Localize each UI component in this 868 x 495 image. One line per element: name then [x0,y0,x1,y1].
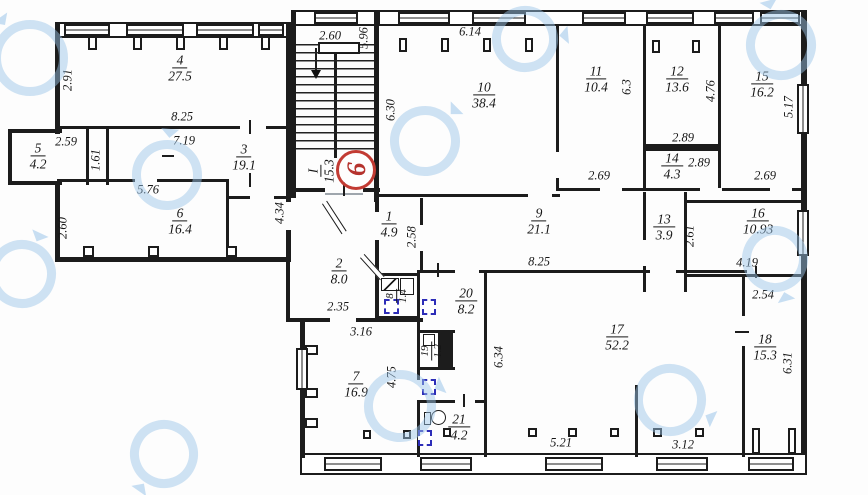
window [196,24,254,36]
window [646,12,694,24]
dim-label: 6.14 [459,25,481,40]
dim-label: 2.58 [405,226,420,248]
room-label-20: 208.2 [455,285,477,316]
dim-label: 4.75 [385,366,400,388]
dim-label: 4.19 [736,256,758,271]
door-opening [600,188,622,191]
dim-label: 2.60 [56,217,71,239]
dim-label: 8.25 [171,110,193,125]
room-label-10: 1038.4 [472,79,496,110]
pier [88,36,97,50]
wall [286,240,290,322]
dim-label: 2.69 [588,169,610,184]
pier [133,36,142,50]
dim-label: 3.12 [672,438,694,453]
window [258,24,284,36]
floor-plan: 9 427.5 54.2 319.1 616.4 I15.3 1038.4 11… [0,0,868,495]
room-label-18: 1815.3 [753,331,777,362]
door-opening [375,212,379,240]
room-label-13: 133.9 [653,211,675,242]
wall [684,200,803,203]
room-label-2: 28.0 [331,255,348,286]
watermark-logo-icon [120,410,207,495]
wall [718,26,721,191]
dim-label: 2.89 [688,156,710,171]
room-label-21: 214.2 [448,411,470,442]
window [797,210,809,256]
pier [226,246,237,257]
dim-label: 2.69 [754,169,776,184]
wall [484,270,487,457]
dim-label: 6.31 [781,352,796,374]
dim-tick [249,120,251,134]
pier [305,418,318,428]
room-label-7: 716.9 [344,368,368,399]
pier [403,430,411,439]
pier [219,36,228,50]
door-opening [455,400,475,403]
red-stamp-circle: 9 [336,150,376,190]
door-opening [420,225,423,251]
dim-label: 2.61 [683,225,698,247]
watermark-logo-icon [118,126,217,225]
wall [106,129,109,185]
vent-shaft-icon [422,379,436,395]
window [324,457,382,471]
dim-label: 5.17 [782,96,797,118]
toilet-tank-icon [424,412,431,425]
door-opening [417,380,420,400]
pier [525,38,533,52]
window [296,348,308,390]
wall [742,276,745,457]
pier [692,40,700,53]
wall [635,385,638,457]
vent-shaft-icon [418,430,432,446]
pier [441,38,449,52]
dim-label: 5.76 [137,183,159,198]
pier [610,428,619,437]
door-opening [250,196,274,199]
dim-label: 3.16 [350,325,372,340]
pier [528,428,537,437]
dim-label: 1.61 [89,149,104,171]
room-label-14: 144.3 [661,150,683,181]
pier [176,36,185,50]
door-opening [240,126,266,129]
window [64,24,110,36]
window [714,12,754,24]
room-label-12: 1213.6 [665,63,689,94]
window [656,457,708,471]
pier [83,246,94,257]
pier [363,430,371,439]
vent-shaft-icon [422,299,436,315]
pier [148,246,159,257]
dim-tick [249,173,251,187]
room-label-1: 14.9 [381,208,398,239]
stairs-arrow-down-icon [311,70,321,84]
room-label-19: 191.2 [419,342,445,361]
dim-tick [463,394,465,407]
dim-tick [735,331,749,333]
dim-label: 4.34 [273,202,288,224]
dim-label: 2.59 [55,135,77,150]
dim-label: 6.30 [384,99,399,121]
dim-label: 2.91 [61,69,76,91]
dim-label: 5.96 [357,27,372,49]
dim-label: 4.76 [704,80,719,102]
wall [417,400,487,403]
room-label-15: 1516.2 [750,68,774,99]
door-leaf [360,254,385,280]
dim-tick [162,155,174,157]
door-opening [770,188,792,191]
window [582,12,626,24]
wall [643,26,646,191]
door-opening [643,240,646,266]
room-label-16: 1610.93 [743,205,773,236]
door-opening [330,318,356,322]
pier [399,38,407,52]
pier [653,428,662,437]
door-opening [650,270,676,273]
window [472,12,526,24]
dim-label: 6.34 [492,346,507,368]
pier [752,428,760,454]
door-leaf [322,201,347,234]
room-label-4: 427.5 [168,52,192,83]
wall [8,129,12,185]
wall [556,188,803,191]
window [126,24,184,36]
window [748,457,794,471]
room-label-stairwell: I15.3 [305,159,336,183]
window [420,457,472,471]
staircase-treads [296,44,374,156]
door-opening [528,194,552,197]
dim-tick [437,263,439,277]
pier [483,38,491,52]
door-opening [556,152,559,178]
wall [8,129,62,133]
toilet-icon [431,410,446,425]
room-label-6: 616.4 [168,205,192,236]
window [398,12,450,24]
window [797,84,809,134]
window [314,12,358,24]
dim-label: 2.54 [752,288,774,303]
stamp-number: 9 [340,161,371,176]
dim-label: 8.25 [528,255,550,270]
room-label-9: 921.1 [527,205,551,236]
dim-label: 7.19 [173,134,195,149]
staircase-landing-step [318,42,360,54]
window [545,457,603,471]
wall [8,181,62,185]
dim-label: 2.89 [672,131,694,146]
dim-label: 2.60 [319,29,341,44]
pier [261,36,270,50]
room-label-8: 81.4 [384,289,410,303]
pier [695,428,704,437]
room-label-17: 1752.2 [605,321,629,352]
pier [652,40,660,53]
wall [378,316,420,319]
wall [55,22,60,134]
wall [55,257,291,262]
window [760,12,800,24]
dim-label: 2.35 [327,300,349,315]
room-label-11: 1110.4 [584,63,608,94]
wall [450,330,453,370]
wall [417,270,420,457]
door-opening [700,188,722,191]
room-label-5: 54.2 [30,140,47,171]
dim-label: 5.21 [550,436,572,451]
door-opening [455,270,479,273]
dim-label: 6.3 [620,79,635,95]
pier [788,428,796,454]
room-label-3: 319.1 [232,141,256,172]
